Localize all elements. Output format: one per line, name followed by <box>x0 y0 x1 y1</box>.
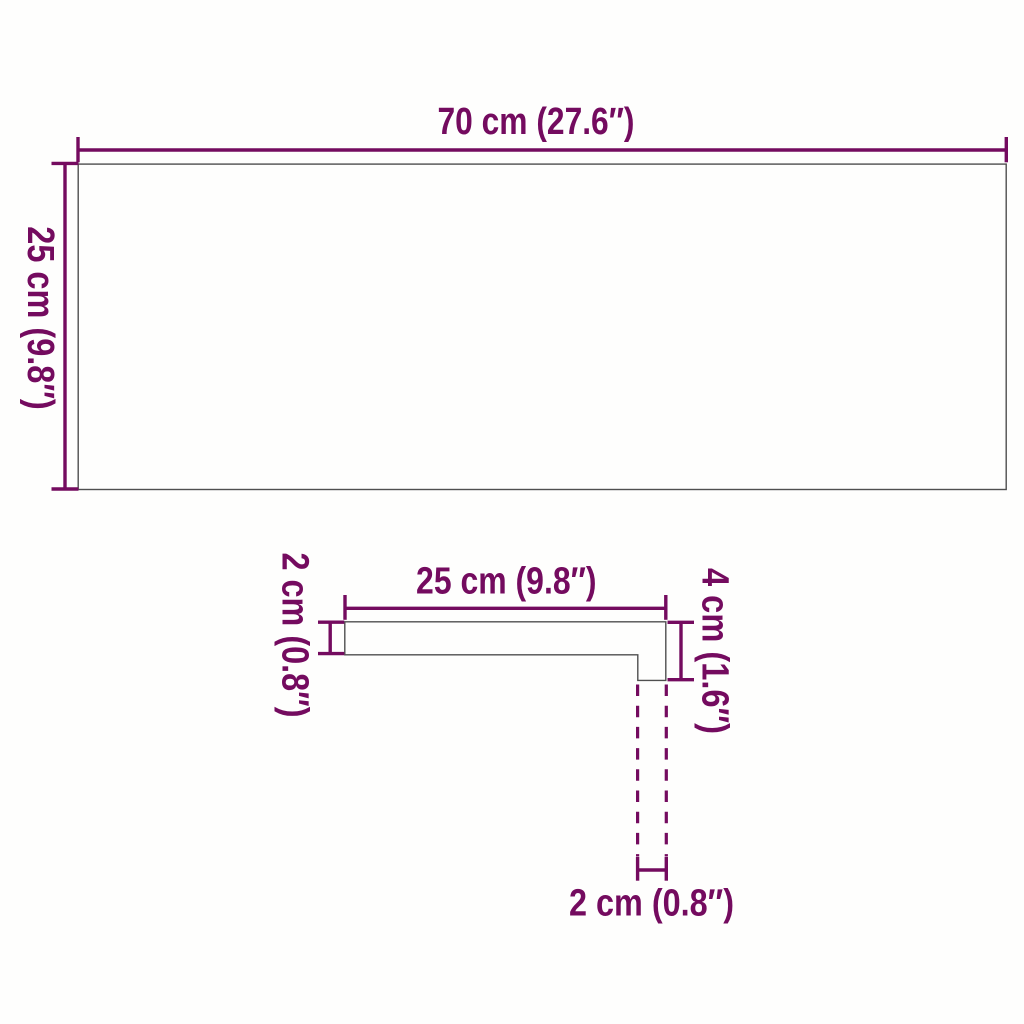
svg-text:2 cm (0.8″): 2 cm (0.8″) <box>569 883 734 925</box>
svg-text:25 cm (9.8″): 25 cm (9.8″) <box>19 226 61 410</box>
svg-text:4 cm (1.6″): 4 cm (1.6″) <box>694 568 736 734</box>
svg-text:70 cm (27.6″): 70 cm (27.6″) <box>438 101 635 143</box>
svg-text:2 cm (0.8″): 2 cm (0.8″) <box>274 553 316 718</box>
svg-text:25 cm (9.8″): 25 cm (9.8″) <box>416 561 597 603</box>
